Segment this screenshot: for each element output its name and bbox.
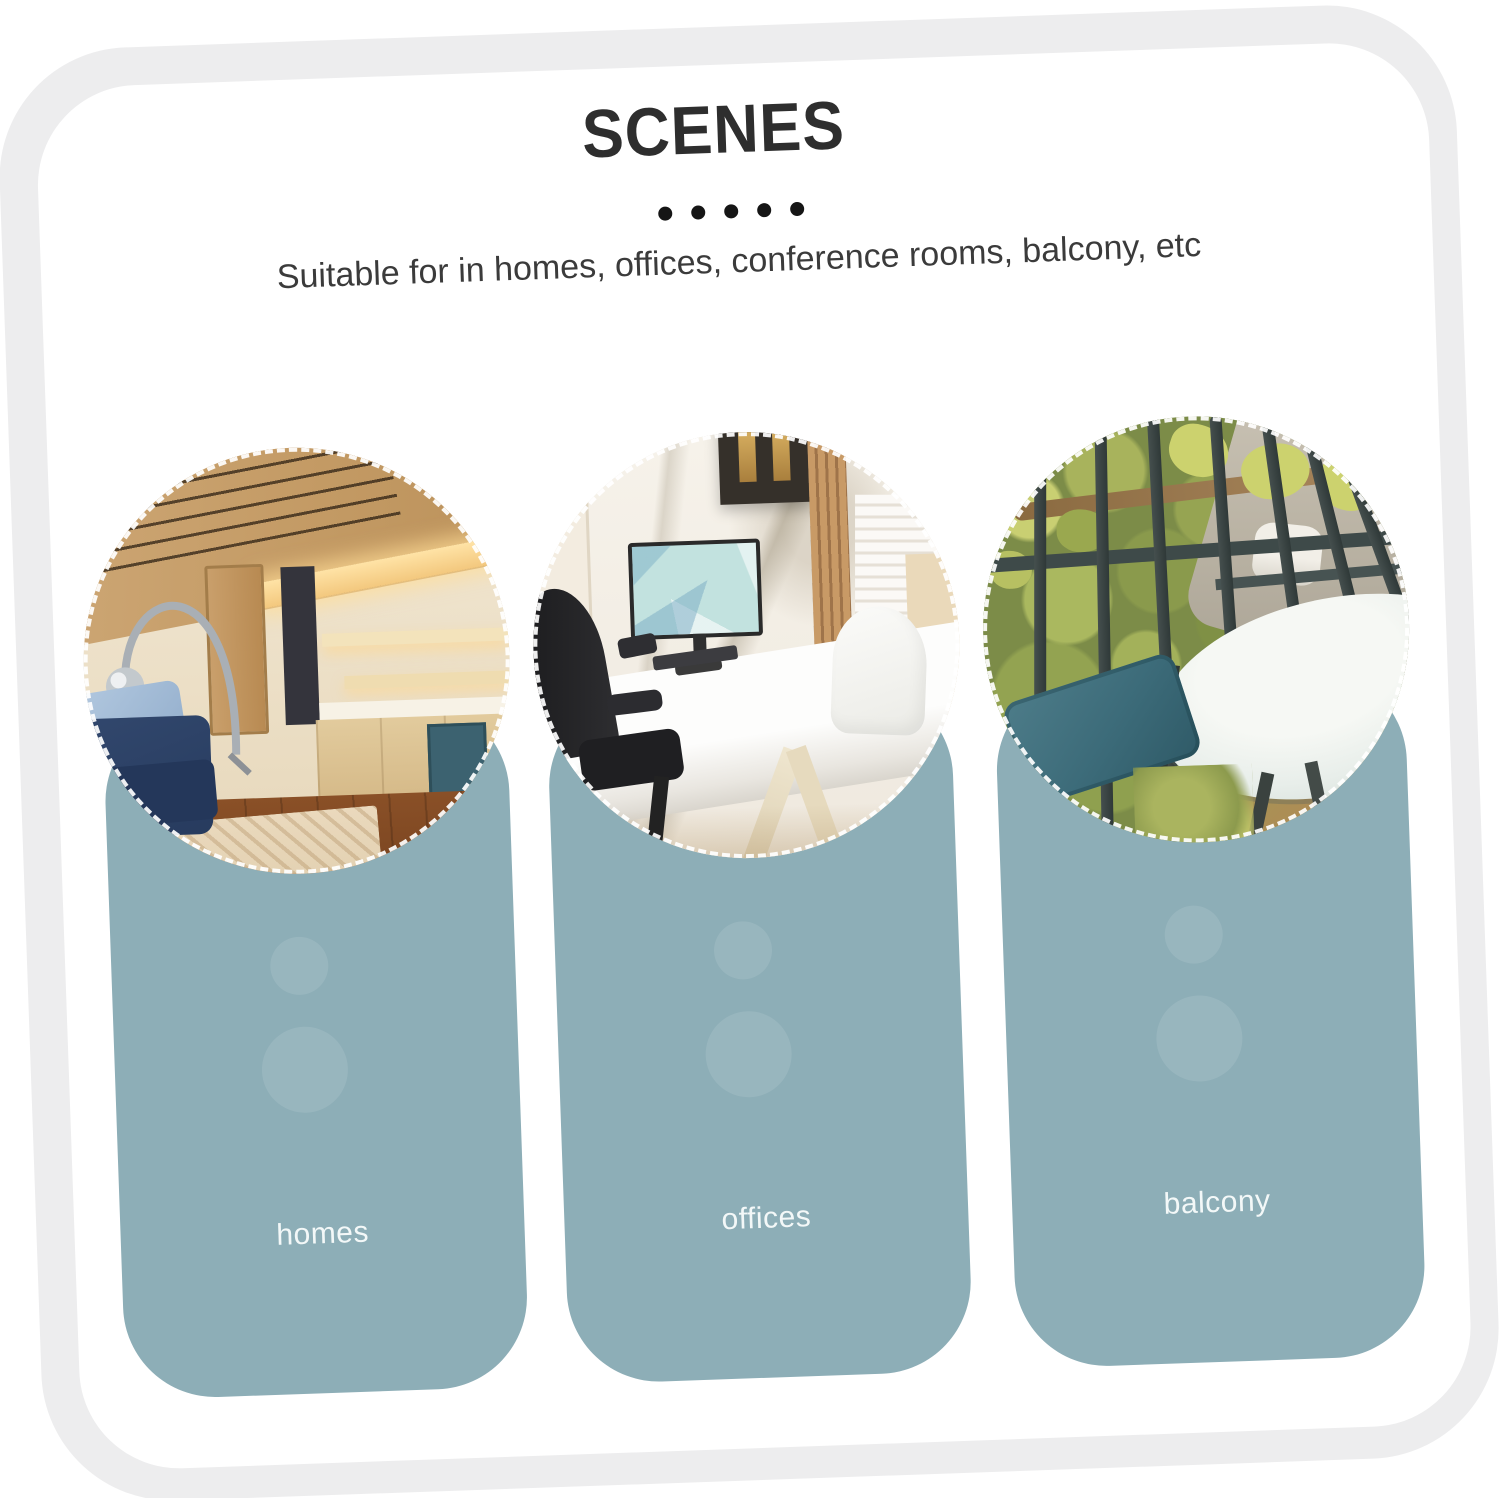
- watermark-circle-large: [704, 1010, 793, 1099]
- dot-icon: [790, 202, 804, 216]
- white-chair-shape: [830, 605, 928, 736]
- watermark-circle-small: [269, 936, 329, 996]
- watermark-circle-large: [260, 1025, 349, 1114]
- watermark-circle-small: [1164, 905, 1224, 965]
- scene-photo-offices: [526, 425, 967, 866]
- sofa-seat-shape: [94, 759, 218, 829]
- monitor-screen-shape: [632, 542, 759, 636]
- scene-photo-balcony: [976, 409, 1417, 850]
- wall-art-shape: [717, 425, 814, 506]
- dot-icon: [757, 203, 771, 217]
- dot-icon: [691, 205, 705, 219]
- shrub-shape: [1133, 764, 1256, 850]
- scene-label-offices: offices: [564, 1195, 969, 1243]
- scene-photo-homes: [76, 440, 517, 881]
- watermark-circle-large: [1155, 994, 1244, 1083]
- product-infographic: SCENES Suitable for in homes, offices, c…: [0, 0, 1500, 1498]
- art-gold-bar: [772, 428, 791, 481]
- tilted-design-group: SCENES Suitable for in homes, offices, c…: [0, 0, 1500, 1498]
- art-gold-bar: [738, 429, 757, 482]
- dot-icon: [658, 206, 672, 220]
- dot-icon: [724, 204, 738, 218]
- monitor-shape: [628, 538, 763, 641]
- scene-label-homes: homes: [120, 1210, 525, 1258]
- watermark-circle-small: [713, 920, 773, 980]
- dark-doorway-shape: [281, 566, 321, 725]
- scene-label-balcony: balcony: [1012, 1179, 1423, 1227]
- appliance-shape: [427, 722, 489, 796]
